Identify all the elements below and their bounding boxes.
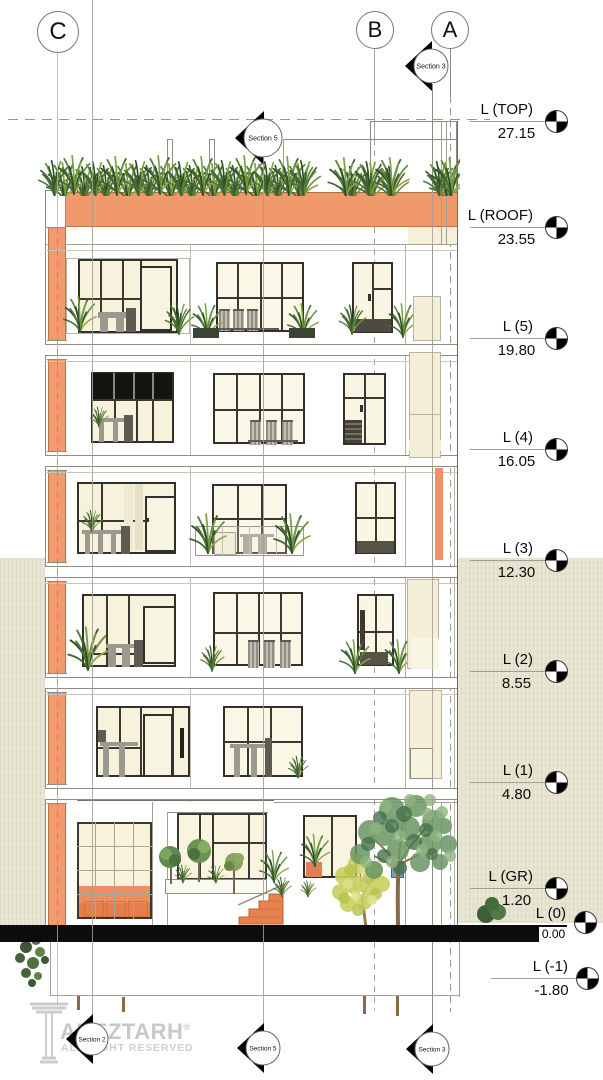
- svg-text:Section 3: Section 3: [416, 64, 445, 71]
- svg-text:Section 5: Section 5: [248, 136, 277, 143]
- svg-text:Section 5: Section 5: [249, 1046, 276, 1053]
- svg-text:Section 2: Section 2: [78, 1037, 105, 1044]
- svg-text:Section 3: Section 3: [418, 1047, 445, 1054]
